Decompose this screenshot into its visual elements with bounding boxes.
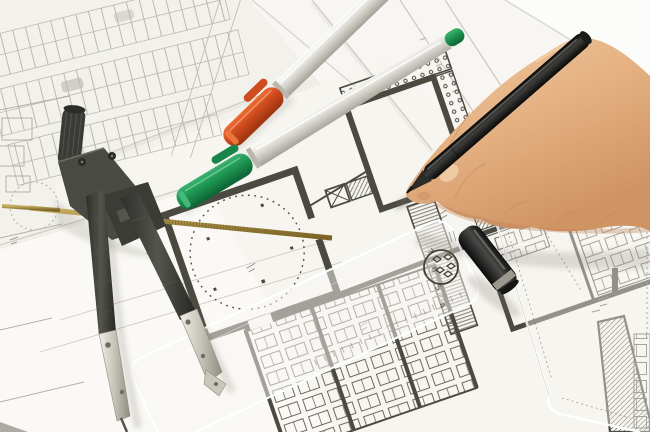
photo-architect-desk: Photograph: a right hand drawing with a … (0, 0, 650, 432)
architect-stamp (424, 250, 458, 284)
